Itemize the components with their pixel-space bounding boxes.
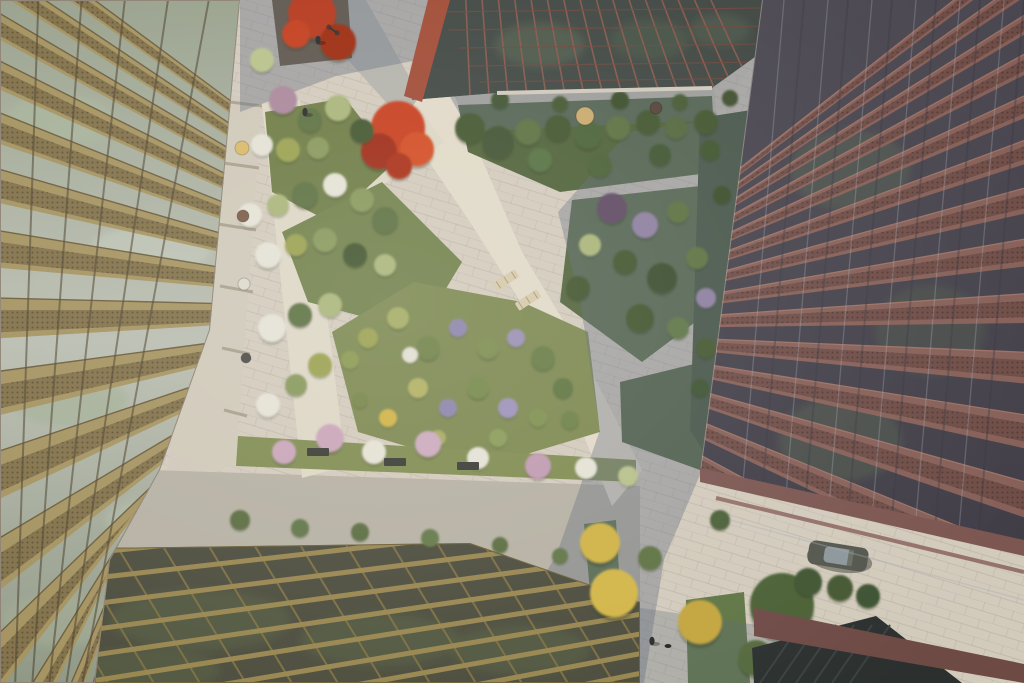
- sunlight-overlay: [0, 0, 1024, 683]
- rendered-scene: [0, 0, 1024, 683]
- courtyard-aerial-rendering: [0, 0, 1024, 683]
